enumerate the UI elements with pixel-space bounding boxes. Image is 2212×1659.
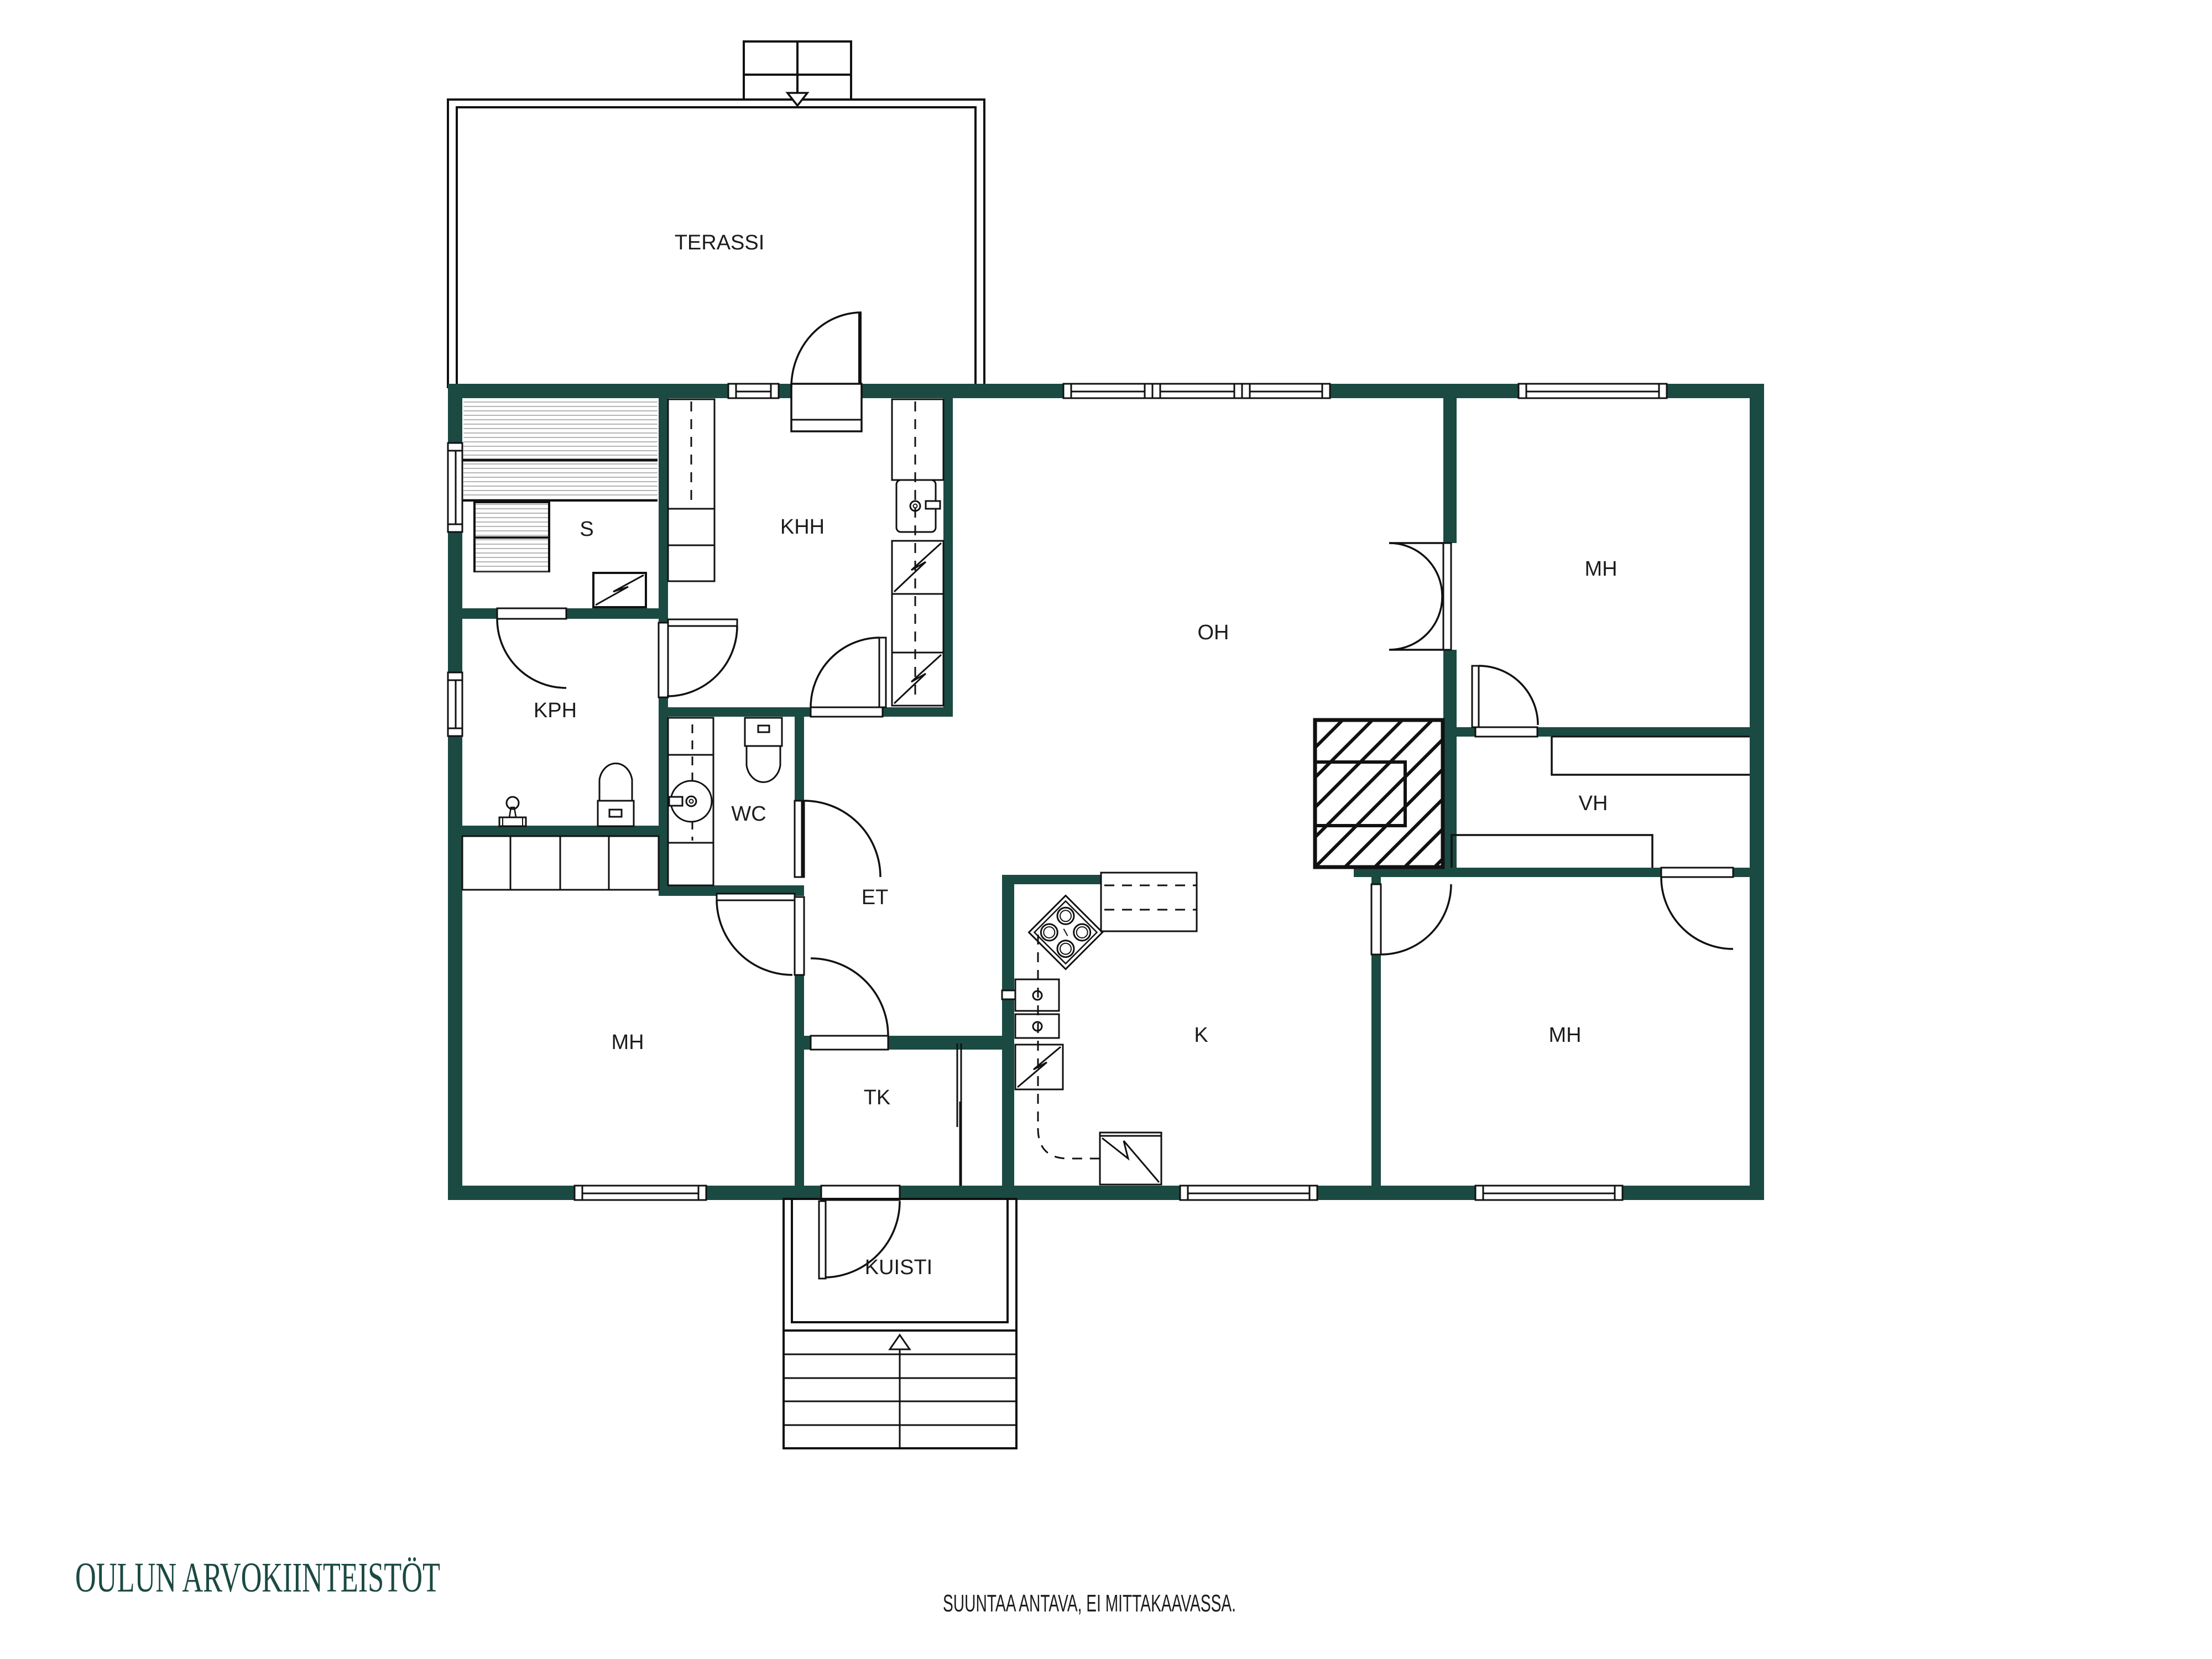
svg-text:OULUN ARVOKIINTEISTÖT: OULUN ARVOKIINTEISTÖT [75, 1554, 440, 1601]
svg-text:KPH: KPH [534, 699, 577, 722]
svg-text:SUUNTAA ANTAVA, EI MITTAKAAVAS: SUUNTAA ANTAVA, EI MITTAKAAVASSA. [943, 1590, 1236, 1617]
svg-text:KUISTI: KUISTI [865, 1256, 932, 1279]
svg-text:S: S [580, 518, 593, 541]
svg-text:OH: OH [1198, 621, 1229, 644]
svg-text:K: K [1194, 1024, 1208, 1047]
svg-text:MH: MH [1584, 557, 1617, 581]
svg-text:VH: VH [1579, 792, 1608, 815]
svg-text:WC: WC [731, 802, 766, 826]
svg-text:KHH: KHH [780, 515, 825, 539]
svg-text:MH: MH [1548, 1024, 1581, 1047]
svg-text:TK: TK [864, 1086, 891, 1109]
svg-text:MH: MH [611, 1031, 644, 1054]
svg-text:ET: ET [862, 886, 889, 909]
svg-text:TERASSI: TERASSI [675, 231, 765, 254]
